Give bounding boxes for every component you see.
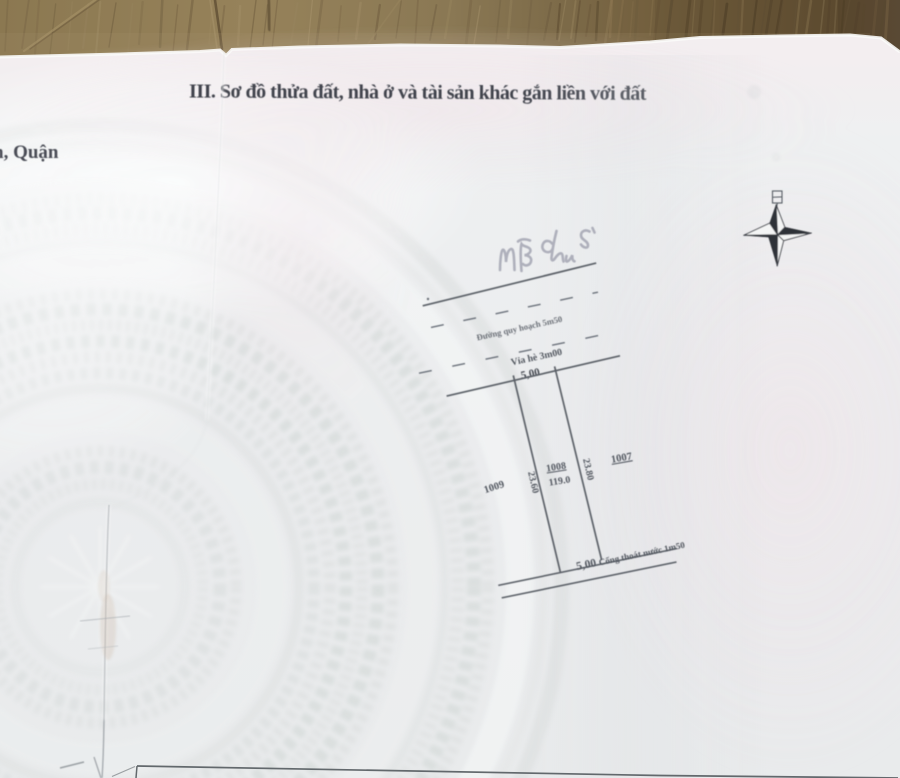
svg-text:n, Quận: n, Quận <box>0 142 59 163</box>
